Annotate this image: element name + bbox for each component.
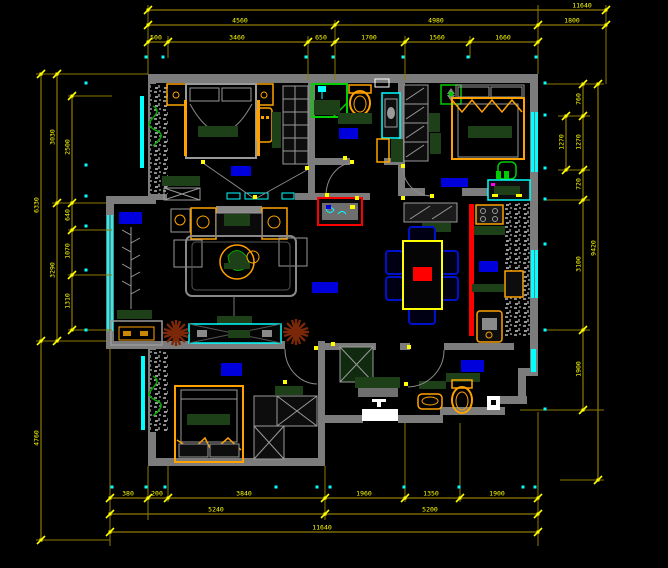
dim-chain-left-mid: 30303290 <box>49 70 62 345</box>
blanket <box>198 126 238 137</box>
washbasin <box>382 93 400 138</box>
door-master <box>203 163 307 199</box>
dim-label: 760 <box>575 93 583 105</box>
dim-label: 1700 <box>361 34 377 42</box>
dim-dot <box>145 486 148 489</box>
sideboard <box>404 203 457 222</box>
dim-chain-top-mid: 456049801800 <box>144 17 610 30</box>
dim-label: 1310 <box>64 293 72 309</box>
nightstand-left <box>167 84 186 105</box>
hatch-bedroom3-balcony <box>150 350 168 432</box>
dim-label: 5200 <box>422 506 438 514</box>
armchair-left <box>174 240 202 267</box>
master-bedroom-label <box>231 166 251 176</box>
dim-label: 1270 <box>575 134 583 150</box>
window-living-left-inner <box>111 215 113 331</box>
cabinet-green <box>272 112 281 148</box>
dim-dot <box>544 329 547 332</box>
chair <box>441 277 458 300</box>
window-kitchen-right-inner <box>535 250 538 298</box>
chair <box>386 277 403 300</box>
dim-label: 4980 <box>428 17 444 25</box>
lamp-icon <box>173 92 179 98</box>
cad-canvas[interactable]: 1164045604980180050034606501700156016603… <box>0 0 668 568</box>
dresser-top <box>162 176 200 186</box>
table-centerpiece <box>413 267 432 281</box>
pillow <box>458 87 489 97</box>
dim-label: 3100 <box>575 256 583 272</box>
dim-chain-top-overall: 11640 <box>144 2 610 15</box>
dim-dot <box>402 56 405 59</box>
pillow <box>491 87 522 97</box>
hallway-label <box>312 282 338 293</box>
dim-dot <box>544 243 547 246</box>
window-master-left <box>140 96 144 168</box>
chair <box>441 251 458 274</box>
dim-label: 1900 <box>489 490 505 498</box>
window-bedroom3-left <box>141 356 145 430</box>
door-bath1 <box>326 163 352 196</box>
lamp-icon <box>261 92 267 98</box>
chair <box>386 251 403 274</box>
dim-label: 3840 <box>236 490 252 498</box>
dim-chain-left-inner: 250064010701310 <box>64 92 77 334</box>
washing-machine <box>477 311 502 342</box>
door-bedroom3 <box>285 349 317 384</box>
bathroom-1 <box>312 79 403 162</box>
dresser-top <box>275 386 303 395</box>
living-room-label <box>119 212 142 224</box>
dim-label: 3290 <box>49 262 57 278</box>
dim-chain-right-window: 1270 <box>558 112 571 174</box>
bathroom-2-label <box>461 360 484 372</box>
dim-label: 1800 <box>564 17 580 25</box>
dim-dot <box>544 408 547 411</box>
dim-dot <box>332 56 335 59</box>
dim-dot <box>164 486 167 489</box>
dim-dot <box>534 486 537 489</box>
cushion <box>224 214 250 226</box>
dim-label: 720 <box>575 178 583 190</box>
hatch-kitchen-wall <box>503 203 530 336</box>
bedroom2-bed <box>452 85 524 159</box>
paper-holder <box>487 396 500 410</box>
dim-label: 6330 <box>33 197 41 213</box>
dim-dot <box>85 164 88 167</box>
hall-cabinet <box>340 347 373 382</box>
counter <box>472 284 504 292</box>
dim-dot <box>275 486 278 489</box>
tv <box>217 316 252 324</box>
floor-plan-drawing: 1164045604980180050034606501700156016603… <box>0 0 668 568</box>
dim-dot <box>467 56 470 59</box>
bedroom3-bed <box>175 386 243 462</box>
dim-dot <box>162 56 165 59</box>
dim-label: 4760 <box>33 430 41 446</box>
entry-label-box <box>362 409 398 421</box>
bathroom-1-label <box>339 128 358 139</box>
dim-label: 2500 <box>64 139 72 155</box>
dim-dot <box>544 114 547 117</box>
bedroom3-wardrobe <box>254 396 317 459</box>
dim-dot <box>316 486 319 489</box>
sink <box>418 394 442 409</box>
toilet-1 <box>349 85 371 115</box>
sofa-arm-right <box>262 208 287 239</box>
dim-label: 5240 <box>208 506 224 514</box>
balcony-plant-stand <box>122 227 140 309</box>
bedroom-2-label <box>441 178 468 187</box>
dim-label: 380 <box>122 490 134 498</box>
dim-dot <box>85 225 88 228</box>
fridge <box>505 271 523 297</box>
sliding-door-track <box>469 204 474 336</box>
kitchen-label <box>479 261 498 272</box>
dim-label: 11640 <box>572 2 592 10</box>
bench <box>164 188 200 200</box>
dim-label: 11640 <box>312 524 332 532</box>
blanket <box>468 126 512 138</box>
sofa-arm-left <box>191 208 216 239</box>
bedroom-3-label <box>221 363 242 376</box>
bath-cabinet-green <box>391 139 403 162</box>
entry-marker <box>362 399 398 421</box>
dim-label: 1270 <box>558 134 566 150</box>
dim-dot <box>458 486 461 489</box>
shoe-cabinet <box>318 198 362 225</box>
sofa <box>191 206 287 239</box>
dim-dot <box>111 486 114 489</box>
dim-dot <box>544 167 547 170</box>
dim-label: 3030 <box>49 129 57 145</box>
window-living-left-outer <box>107 215 109 331</box>
foot-bench <box>179 444 208 457</box>
master-wardrobe <box>283 86 308 164</box>
dim-dot <box>145 56 148 59</box>
dim-dot <box>329 486 332 489</box>
window-bathroom2-right <box>531 349 536 372</box>
corner-table <box>171 209 190 232</box>
dim-dot <box>85 82 88 85</box>
master-bed <box>184 84 260 158</box>
entry <box>340 347 400 421</box>
dim-chain-bottom-inner: 3802003840196013501900 <box>106 490 542 503</box>
window-kitchen-right-outer <box>531 250 534 298</box>
desk <box>488 180 530 200</box>
dim-label: 3460 <box>229 34 245 42</box>
dim-chain-bottom-overall: 11640 <box>106 524 542 537</box>
bedroom2-wardrobe <box>404 85 428 161</box>
dim-dot <box>85 329 88 332</box>
dim-dot <box>522 486 525 489</box>
shower-head-icon <box>318 86 326 92</box>
quilt-zigzag <box>452 100 522 112</box>
dim-dot <box>403 486 406 489</box>
dim-chain-right-overall: 9420 <box>590 80 603 484</box>
dim-label: 1660 <box>495 34 511 42</box>
shoe-bench <box>355 377 400 388</box>
balcony-bench <box>117 310 152 319</box>
dim-label: 9420 <box>590 240 598 256</box>
window-bedroom2-right-outer <box>531 112 534 172</box>
dining-set <box>386 227 458 324</box>
bath-counter <box>419 381 446 389</box>
dim-label: 4560 <box>232 17 248 25</box>
dim-dot <box>85 269 88 272</box>
dim-label: 650 <box>315 34 327 42</box>
dim-label: 1560 <box>429 34 445 42</box>
dim-dot <box>544 82 547 85</box>
plant-icon <box>283 319 309 345</box>
dim-label: 1960 <box>356 490 372 498</box>
dim-label: 1070 <box>64 243 72 259</box>
dim-chain-right-inner: 760127072031001900 <box>575 80 588 414</box>
stove <box>476 205 503 224</box>
dim-dot <box>85 195 88 198</box>
dim-chain-left-overall: 63304760 <box>33 70 46 544</box>
dim-label: 1350 <box>423 490 439 498</box>
dim-label: 1900 <box>575 361 583 377</box>
dim-label: 200 <box>151 490 163 498</box>
foot-bench <box>210 444 239 457</box>
tv-wall <box>189 296 281 343</box>
dim-dot <box>535 56 538 59</box>
dim-label: 640 <box>64 209 72 221</box>
counter <box>474 226 505 235</box>
bath-counter <box>338 113 372 124</box>
shower-shelf <box>314 100 340 115</box>
dim-dot <box>544 198 547 201</box>
blanket <box>187 414 230 425</box>
living-room <box>111 198 362 346</box>
dim-label: 500 <box>150 34 162 42</box>
dim-chain-top-inner: 5003460650170015601660 <box>144 34 542 47</box>
dim-chain-bottom-mid: 52405200 <box>106 506 542 519</box>
coffee-table-plant <box>220 245 259 279</box>
headboard <box>181 390 237 399</box>
dim-dot <box>305 56 308 59</box>
bedroom-3 <box>149 376 317 462</box>
window-bedroom2-right-inner <box>535 112 538 172</box>
dining-room <box>386 203 458 324</box>
